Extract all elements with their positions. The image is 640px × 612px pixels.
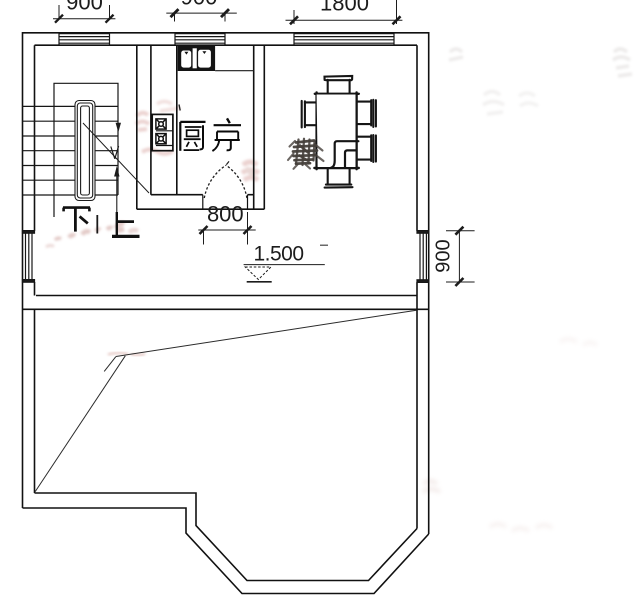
- svg-text:1.500: 1.500: [253, 243, 303, 266]
- svg-text:900: 900: [66, 0, 103, 15]
- svg-text:800: 800: [207, 202, 244, 227]
- svg-text:900: 900: [433, 239, 455, 272]
- svg-text:1800: 1800: [320, 0, 369, 16]
- svg-text:900: 900: [181, 0, 218, 10]
